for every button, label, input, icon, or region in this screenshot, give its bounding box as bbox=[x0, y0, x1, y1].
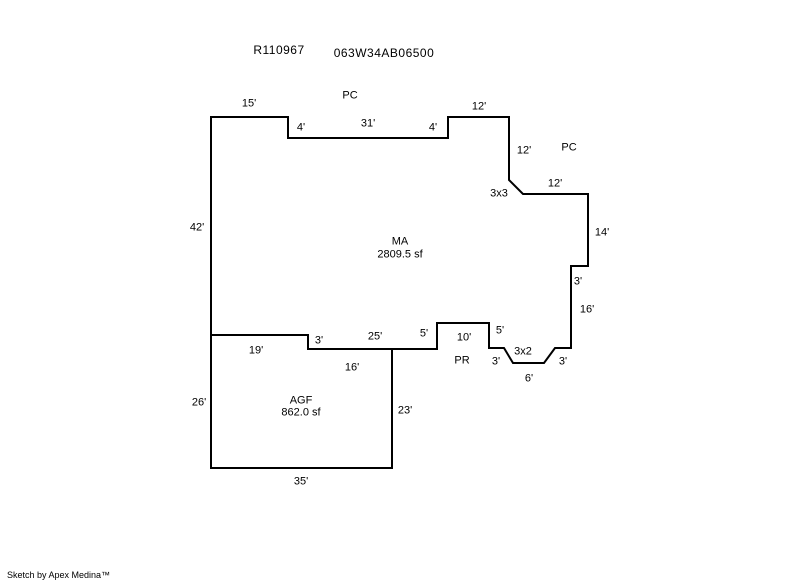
area-code-ma: MA bbox=[392, 237, 409, 248]
dim-26-garage-left: 26' bbox=[192, 398, 206, 409]
dim-3-right-step: 3' bbox=[574, 277, 582, 288]
property-sketch-page: R110967 063W34AB06500 PC15'4'31'4'12'12'… bbox=[0, 0, 800, 587]
sketch-outline-svg bbox=[0, 0, 800, 587]
sketch-credit: Sketch by Apex Medina™ bbox=[7, 570, 110, 580]
dim-19-garage-top: 19' bbox=[249, 346, 263, 357]
dim-3-garage-step: 3' bbox=[315, 336, 323, 347]
dim-3-notch-right: 3' bbox=[559, 357, 567, 368]
dim-42-left: 42' bbox=[190, 223, 204, 234]
dim-5-porch-right: 5' bbox=[496, 326, 504, 337]
dim-3-notch-left: 3' bbox=[492, 357, 500, 368]
dim-35-garage-bottom: 35' bbox=[294, 477, 308, 488]
dim-10-porch-top: 10' bbox=[457, 333, 471, 344]
label-pc-top: PC bbox=[342, 91, 357, 102]
dim-23-garage-right: 23' bbox=[398, 406, 412, 417]
dim-5-porch-left: 5' bbox=[420, 329, 428, 340]
dim-14-right: 14' bbox=[595, 228, 609, 239]
label-pr: PR bbox=[454, 356, 469, 367]
label-pc-right: PC bbox=[561, 143, 576, 154]
dim-25-ma-bottom: 25' bbox=[368, 332, 382, 343]
dim-15-top: 15' bbox=[242, 99, 256, 110]
area-size-ma: 2809.5 sf bbox=[377, 250, 422, 261]
dim-16-garage-top: 16' bbox=[345, 363, 359, 374]
dim-16-right: 16' bbox=[580, 305, 594, 316]
dim-4-step-right: 4' bbox=[429, 123, 437, 134]
dim-31-top: 31' bbox=[361, 119, 375, 130]
dim-3x3-corner: 3x3 bbox=[490, 189, 508, 200]
dim-6-notch-bottom: 6' bbox=[525, 374, 533, 385]
dim-12-right-lower: 12' bbox=[548, 179, 562, 190]
dim-4-step-left: 4' bbox=[297, 123, 305, 134]
dim-12-top: 12' bbox=[472, 102, 486, 113]
dim-12-right-upper: 12' bbox=[517, 146, 531, 157]
area-size-agf: 862.0 sf bbox=[281, 408, 320, 419]
dim-3x2-corner: 3x2 bbox=[514, 347, 532, 358]
area-code-agf: AGF bbox=[290, 396, 313, 407]
